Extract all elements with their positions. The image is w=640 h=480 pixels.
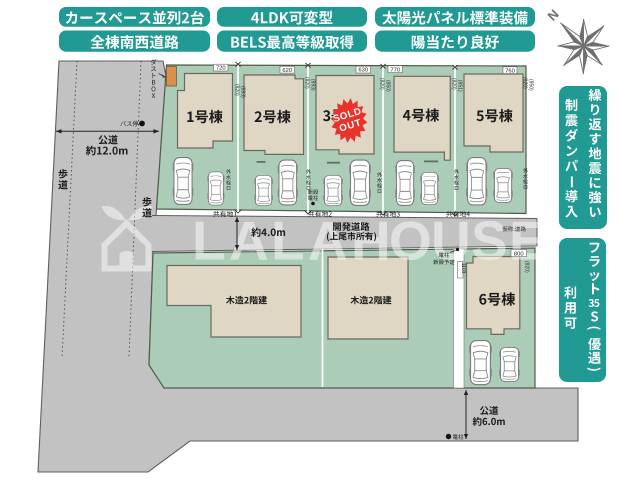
svg-text:720: 720 — [216, 66, 226, 72]
svg-text:(850): (850) — [385, 80, 391, 92]
svg-text:(893): (893) — [310, 79, 316, 91]
svg-text:L: L — [271, 210, 305, 272]
svg-text:(851): (851) — [457, 80, 463, 92]
svg-text:H: H — [351, 210, 391, 272]
svg-text:O: O — [389, 210, 432, 272]
svg-text:(820): (820) — [524, 261, 530, 273]
svg-text:S: S — [471, 210, 508, 272]
svg-text:A: A — [229, 210, 269, 272]
svg-text:(820): (820) — [233, 84, 239, 96]
svg-text:L: L — [192, 210, 226, 272]
svg-text:(820): (820) — [378, 78, 384, 90]
svg-text:(850): (850) — [528, 79, 534, 91]
svg-text:760: 760 — [505, 68, 515, 74]
svg-text:1103: 1103 — [460, 263, 466, 274]
svg-text:(820): (820) — [303, 77, 309, 89]
svg-text:(893): (893) — [240, 86, 246, 98]
svg-text:630: 630 — [358, 68, 368, 74]
svg-text:(820): (820) — [450, 78, 456, 90]
svg-text:800: 800 — [514, 251, 524, 257]
svg-text:620: 620 — [282, 68, 292, 74]
svg-text:(820): (820) — [521, 77, 527, 89]
svg-text:770: 770 — [390, 67, 400, 73]
